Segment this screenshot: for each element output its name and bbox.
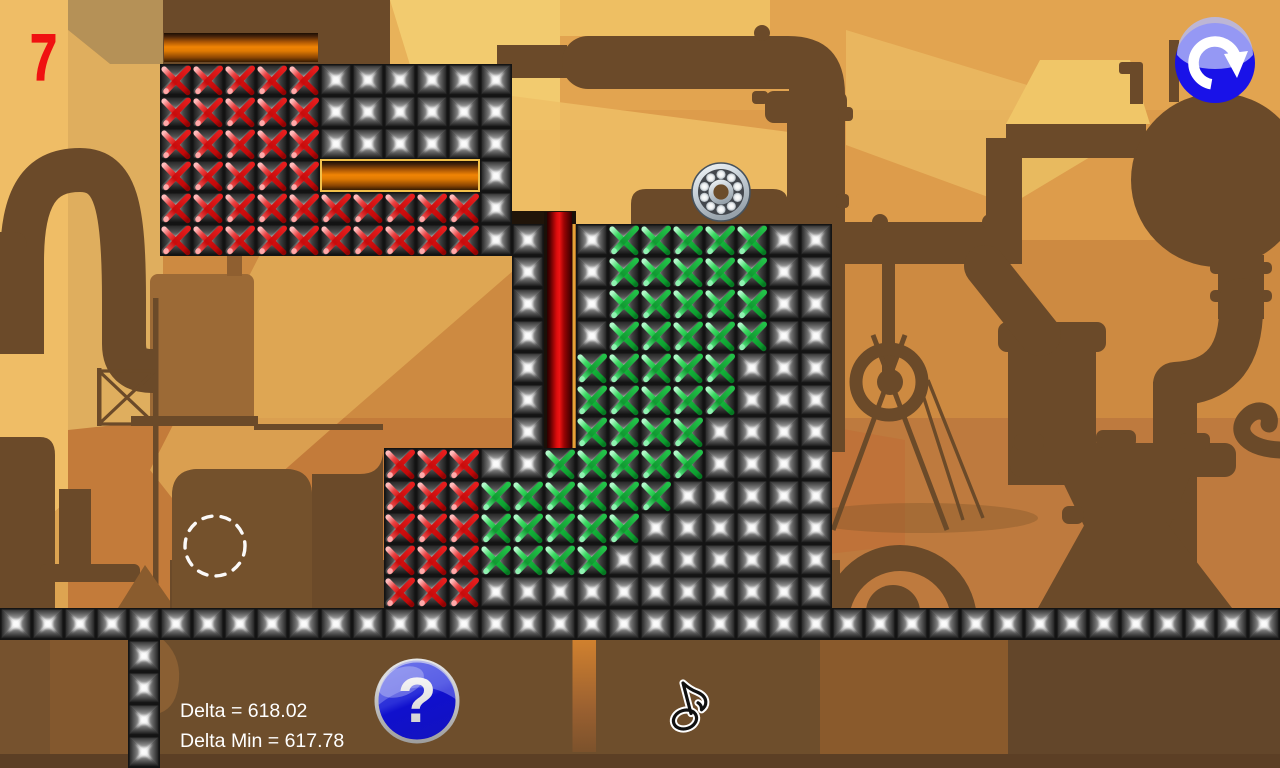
svg-text:Delta Min = 617.78: Delta Min = 617.78 [180,730,344,752]
svg-text:?: ? [397,664,436,736]
svg-text:7: 7 [30,21,57,95]
svg-text:Delta = 618.02: Delta = 618.02 [180,700,307,722]
